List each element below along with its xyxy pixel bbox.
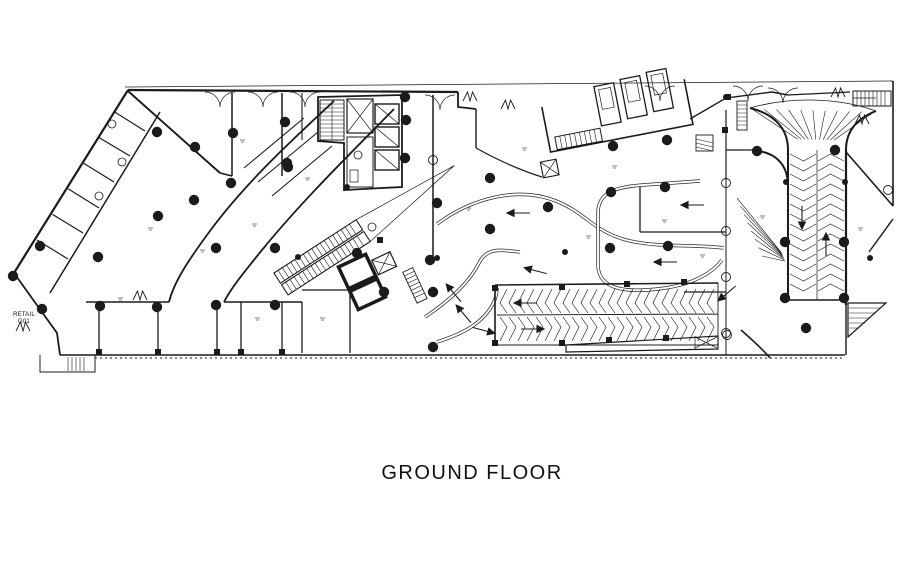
column-dot (401, 115, 411, 125)
column-dot (211, 300, 221, 310)
arrow-glyph (681, 202, 704, 209)
column-dot (152, 127, 162, 137)
column-dot (35, 241, 45, 251)
column-dot (606, 187, 616, 197)
column-dot (37, 304, 47, 314)
fixture-circle (95, 192, 103, 200)
revolving-door-icon (133, 291, 147, 300)
traffic-arrow (654, 259, 677, 266)
traffic-arrow (514, 300, 537, 307)
column-dot (189, 195, 199, 205)
outer-boundary (14, 81, 893, 372)
escalator (274, 159, 464, 295)
wall-post (725, 94, 731, 100)
grid-bubble (884, 186, 893, 195)
wall-post (663, 335, 669, 341)
traffic-arrow (507, 210, 530, 217)
column-dot (95, 301, 105, 311)
wall-post (238, 349, 244, 355)
mechanical-units (593, 69, 674, 126)
room-label-mark (252, 224, 257, 226)
wall-post (214, 349, 220, 355)
arrow-glyph (823, 233, 830, 256)
column-dot (608, 141, 618, 151)
wall-post (155, 349, 161, 355)
column-dot (379, 287, 389, 297)
revolving-door-icon (463, 92, 477, 101)
column-dot-small (434, 255, 440, 261)
column-dot (605, 243, 615, 253)
room-label-mark (148, 228, 153, 230)
traffic-arrow (799, 206, 806, 229)
room-label-mark (240, 140, 245, 142)
arrow-glyph (507, 210, 530, 217)
column-dot (780, 237, 790, 247)
column-dot (801, 323, 811, 333)
column-dot (400, 153, 410, 163)
column-dot-small (344, 184, 350, 190)
traffic-arrow (716, 283, 738, 303)
wall-post (279, 349, 285, 355)
sheet-title: GROUND FLOOR (381, 462, 562, 484)
arrow-glyph (514, 300, 537, 307)
column-dot-small (295, 254, 301, 260)
plant-room (527, 65, 697, 177)
room-label-mark (200, 250, 205, 252)
column-dot (660, 182, 670, 192)
column-dot (153, 211, 163, 221)
wall-post (559, 340, 565, 346)
room-label-mark (700, 255, 705, 257)
column-dot (152, 302, 162, 312)
arrow-glyph (799, 206, 806, 229)
wall-post (559, 284, 565, 290)
column-dot (752, 146, 762, 156)
floor-plan-page: GROUND FLOOR RETAIL G01 (0, 0, 897, 578)
room-label-mark (662, 220, 667, 222)
double-door-icon (248, 92, 278, 107)
room-label-mark (522, 148, 527, 150)
arrow-glyph (523, 264, 547, 277)
double-door-icon (205, 92, 235, 107)
room-label-mark (255, 318, 260, 320)
generated-symbols (8, 86, 893, 355)
room-label-mark (760, 216, 765, 218)
fixture-circle (368, 223, 376, 231)
column-dot-small (867, 255, 873, 261)
arrow-glyph (454, 303, 474, 325)
column-dot (190, 142, 200, 152)
retail-label-line2: G01 (18, 319, 30, 325)
column-dot (428, 287, 438, 297)
floor-plan-canvas: GROUND FLOOR RETAIL G01 (0, 0, 897, 578)
column-dot (8, 271, 18, 281)
column-dot (211, 243, 221, 253)
column-dot-small (842, 179, 848, 185)
wall-post (492, 340, 498, 346)
room-label-mark (305, 178, 310, 180)
column-dot (228, 128, 238, 138)
ramp-fan-1 (737, 198, 785, 261)
retail-label-line1: RETAIL (13, 312, 35, 318)
column-dot (280, 117, 290, 127)
column-dot (282, 158, 292, 168)
column-dot (839, 293, 849, 303)
small-stairs (696, 101, 747, 151)
column-dot (543, 202, 553, 212)
core-mid (338, 239, 427, 327)
ramp-fan-0 (752, 109, 874, 140)
column-dot (662, 135, 672, 145)
top-right-stair (853, 91, 891, 106)
fixture-circle (118, 158, 126, 166)
column-dot (93, 252, 103, 262)
revolving-door-icon (501, 100, 515, 109)
column-dot (663, 241, 673, 251)
column-dot (425, 255, 435, 265)
wall-post (722, 127, 728, 133)
arrow-glyph (654, 259, 677, 266)
column-dot (352, 248, 362, 258)
fixture-circle (354, 151, 362, 159)
lower-left-rooms (86, 290, 350, 353)
room-label-mark (466, 208, 471, 210)
room-label-mark (586, 236, 591, 238)
traffic-arrow (523, 264, 547, 277)
fixture-circle (108, 120, 116, 128)
column-dot (270, 300, 280, 310)
column-dot (485, 173, 495, 183)
column-dot (839, 237, 849, 247)
column-dot (830, 145, 840, 155)
wall-post (96, 349, 102, 355)
column-dot (485, 224, 495, 234)
retail-label: RETAIL G01 (13, 312, 35, 325)
wall-post (492, 285, 498, 291)
room-label-mark (858, 228, 863, 230)
column-dot-small (783, 179, 789, 185)
double-door-icon (290, 92, 320, 107)
wall-post (681, 279, 687, 285)
column-dot (780, 293, 790, 303)
room-label-mark (320, 318, 325, 320)
column-dot (270, 243, 280, 253)
wall-post (624, 281, 630, 287)
wall-post (377, 237, 383, 243)
room-label-mark (118, 298, 123, 300)
column-dot (400, 92, 410, 102)
elevator-bank (375, 104, 399, 170)
double-door-icon (425, 95, 455, 110)
traffic-arrow (823, 233, 830, 256)
column-dot-small (562, 249, 568, 255)
traffic-arrow (454, 303, 474, 325)
column-dot (226, 178, 236, 188)
right-wedge (848, 303, 886, 337)
column-dot (428, 342, 438, 352)
room-label-mark (612, 166, 617, 168)
column-dot (432, 198, 442, 208)
traffic-arrow (681, 202, 704, 209)
arrow-glyph (716, 283, 738, 303)
wall-post (606, 337, 612, 343)
